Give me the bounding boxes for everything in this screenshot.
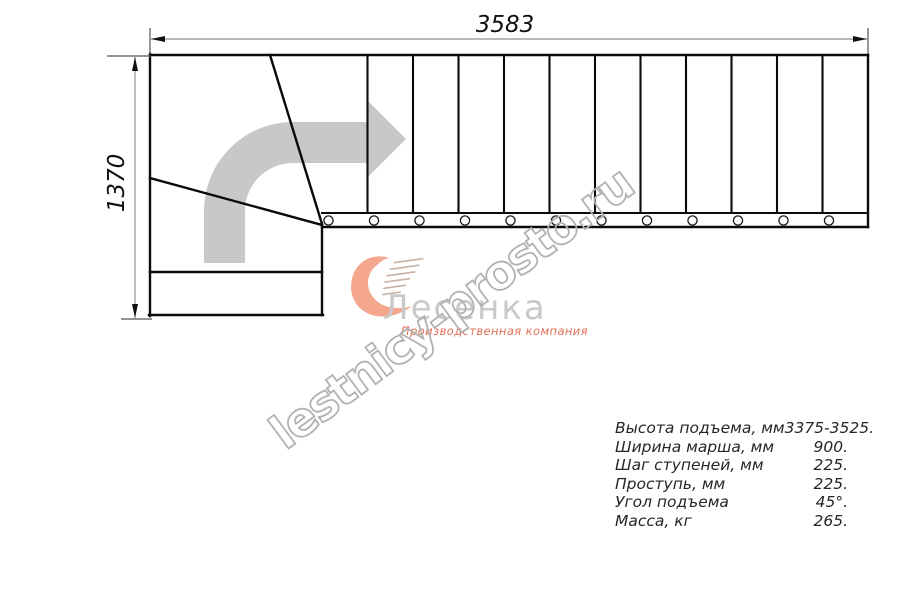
baluster-circle [688, 216, 697, 225]
spec-row: Ширина марша, мм900. [615, 438, 848, 457]
direction-arrow-icon [204, 101, 406, 263]
spec-label: Угол подъема [615, 493, 729, 512]
spec-value: 900. [813, 438, 848, 457]
baluster-circle [824, 216, 833, 225]
spec-row: Угол подъема45°. [615, 493, 848, 512]
speed-line [384, 279, 410, 283]
baluster-circle [551, 216, 560, 225]
spec-label: Высота подъема, мм [615, 419, 785, 438]
baluster-circle [324, 216, 333, 225]
baluster-circle [642, 216, 651, 225]
baluster-circle [779, 216, 788, 225]
dim-arrow-right [853, 36, 867, 42]
dimension-width-label: 3583 [455, 12, 555, 38]
specs-table: Высота подъема, мм3375-3525.Ширина марша… [615, 419, 848, 531]
spec-row: Масса, кг265. [615, 512, 848, 531]
spec-value: 225. [813, 475, 848, 494]
spec-label: Шаг ступеней, мм [615, 456, 764, 475]
spec-row: Шаг ступеней, мм225. [615, 456, 848, 475]
spec-row: Проступь, мм225. [615, 475, 848, 494]
baluster-circle [506, 216, 515, 225]
baluster-circle [415, 216, 424, 225]
logo-tagline: Производственная компания [401, 324, 588, 338]
speed-line [394, 259, 424, 263]
dim-arrow-up [132, 57, 138, 71]
spec-label: Проступь, мм [615, 475, 725, 494]
spec-value: 45°. [816, 493, 848, 512]
speed-line [390, 265, 420, 269]
baluster-circles [324, 216, 834, 225]
stair-drawing-page: 3583 1370 Лесенка Производственная компа… [0, 0, 900, 600]
baluster-circle [733, 216, 742, 225]
spec-label: Ширина марша, мм [615, 438, 774, 457]
baluster-circle [460, 216, 469, 225]
dim-arrow-down [132, 304, 138, 318]
logo-name: Лесенка [383, 288, 547, 328]
spec-value: 225. [813, 456, 848, 475]
spec-value: 3375-3525. [785, 419, 874, 438]
baluster-circle [369, 216, 378, 225]
dim-arrow-left [151, 36, 165, 42]
spec-label: Масса, кг [615, 512, 692, 531]
speed-line [387, 272, 416, 276]
tread-lines [368, 55, 823, 214]
spec-row: Высота подъема, мм3375-3525. [615, 419, 848, 438]
dimension-height-label: 1370 [104, 132, 130, 234]
baluster-circle [597, 216, 606, 225]
plan-outline [149, 54, 868, 316]
spec-value: 265. [813, 512, 848, 531]
